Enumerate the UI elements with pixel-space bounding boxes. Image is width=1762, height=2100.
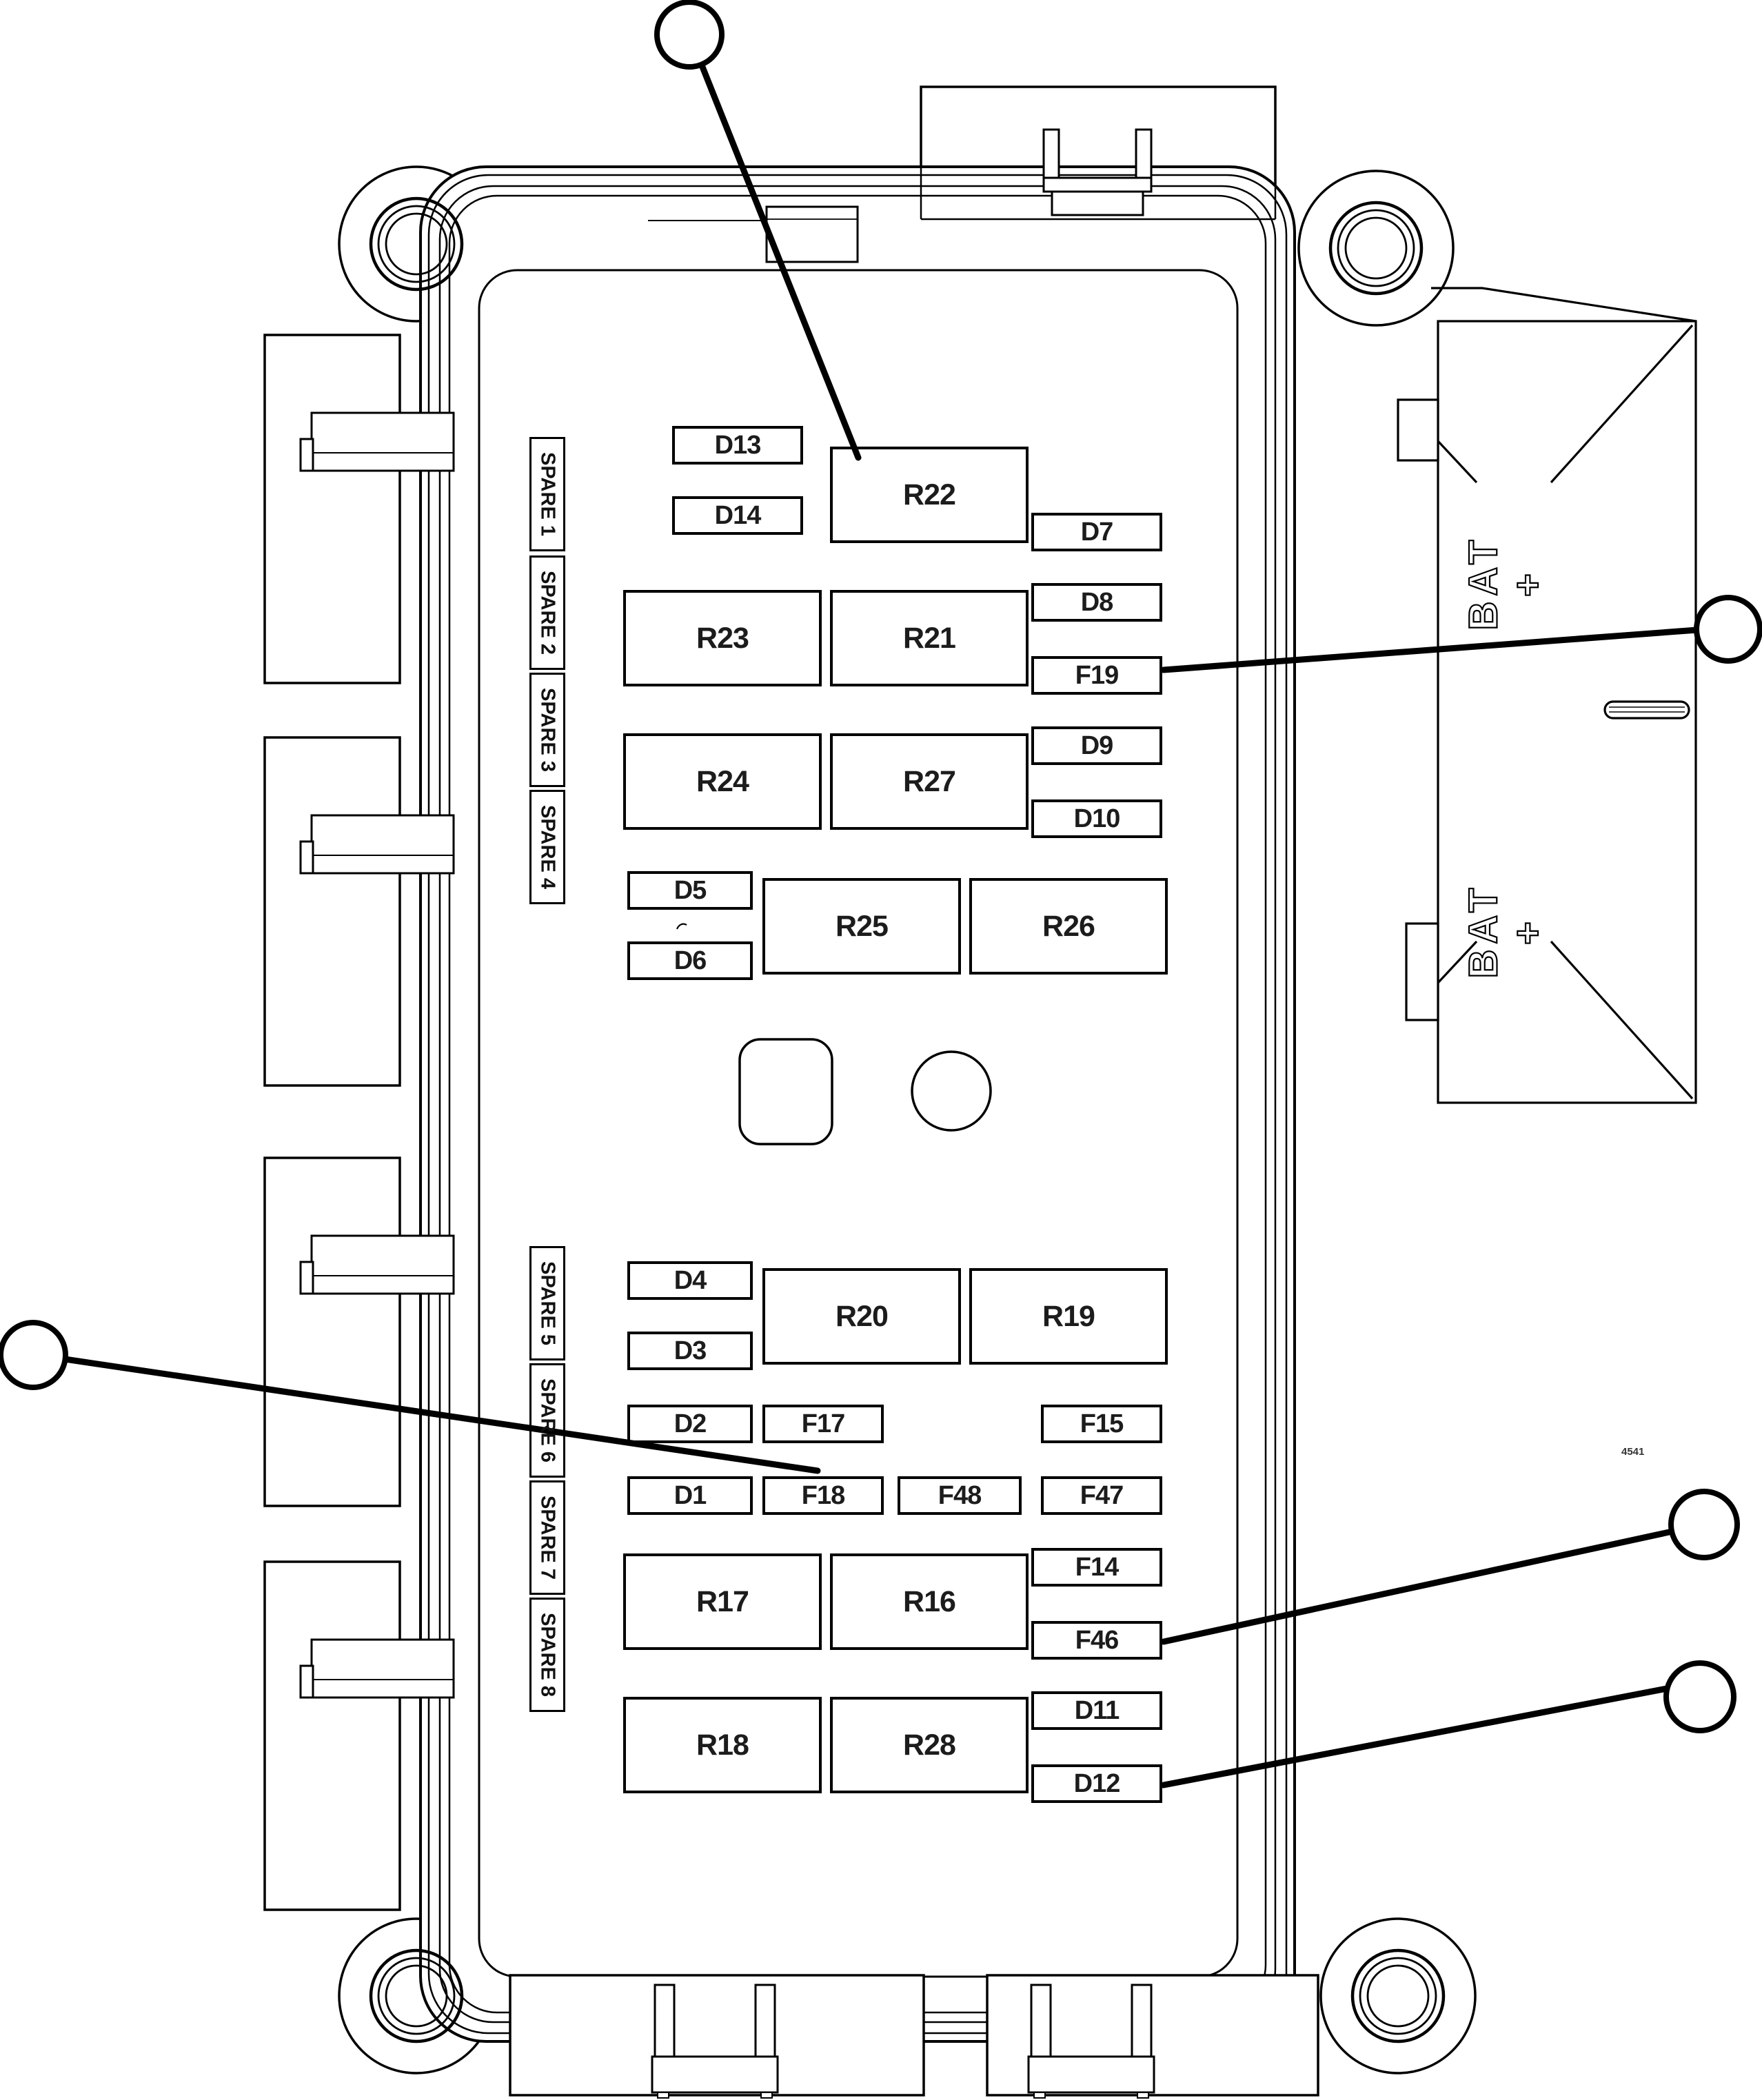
slot-r18-label: R18 — [696, 1729, 749, 1762]
battery-cover-panel — [1398, 288, 1696, 1103]
slot-r21-label: R21 — [903, 622, 955, 655]
slot-d5: D5 — [627, 871, 753, 910]
spare-slot-2: SPARE 2 — [529, 555, 565, 670]
slot-d10-label: D10 — [1074, 804, 1120, 834]
slot-r17: R17 — [623, 1553, 822, 1650]
slot-d9-label: D9 — [1081, 731, 1113, 761]
slot-f47: F47 — [1041, 1476, 1162, 1515]
slot-r17-label: R17 — [696, 1585, 749, 1619]
slot-d4-label: D4 — [674, 1266, 707, 1296]
slot-f14: F14 — [1031, 1548, 1162, 1587]
callout-circle-r22 — [657, 2, 722, 67]
bottom-connectors — [510, 1975, 1318, 2098]
bat-plus-upper: + — [1506, 568, 1550, 597]
slot-r19-label: R19 — [1042, 1300, 1095, 1334]
slot-r27: R27 — [830, 733, 1029, 830]
slot-d8: D8 — [1031, 583, 1162, 622]
bat-label-upper: BAT — [1461, 535, 1506, 631]
slot-f17: F17 — [762, 1405, 884, 1443]
slot-d10: D10 — [1031, 799, 1162, 838]
callout-circle-f46 — [1671, 1491, 1737, 1558]
slot-d11: D11 — [1031, 1691, 1162, 1730]
slot-d13-label: D13 — [715, 431, 761, 460]
slot-r23: R23 — [623, 590, 822, 686]
slot-r18: R18 — [623, 1697, 822, 1793]
callout-circle-d12 — [1666, 1663, 1734, 1731]
slot-d7: D7 — [1031, 513, 1162, 551]
spare-slot-8-label: SPARE 8 — [536, 1613, 559, 1697]
slot-r26-label: R26 — [1042, 910, 1095, 944]
slot-d2: D2 — [627, 1405, 753, 1443]
slot-d14-label: D14 — [715, 501, 761, 531]
slot-f15: F15 — [1041, 1405, 1162, 1443]
bat-plus-lower: + — [1506, 916, 1550, 945]
spare-slot-6: SPARE 6 — [529, 1363, 565, 1478]
spare-slot-7: SPARE 7 — [529, 1480, 565, 1595]
slot-f17-label: F17 — [802, 1409, 844, 1439]
spare-slot-4-label: SPARE 4 — [536, 805, 559, 889]
slot-f14-label: F14 — [1075, 1553, 1118, 1582]
slot-d2-label: D2 — [674, 1409, 707, 1439]
slot-d3: D3 — [627, 1332, 753, 1370]
spare-slot-7-label: SPARE 7 — [536, 1496, 559, 1580]
slot-r25-label: R25 — [836, 910, 888, 944]
slot-f46: F46 — [1031, 1621, 1162, 1660]
slot-r26: R26 — [969, 878, 1168, 975]
slot-r20-label: R20 — [836, 1300, 888, 1334]
slot-d3-label: D3 — [674, 1336, 707, 1366]
slot-r19: R19 — [969, 1268, 1168, 1365]
slot-r24-label: R24 — [696, 765, 749, 799]
slot-r21: R21 — [830, 590, 1029, 686]
slot-r23-label: R23 — [696, 622, 749, 655]
slot-d6: D6 — [627, 941, 753, 980]
slot-r24: R24 — [623, 733, 822, 830]
slot-d13: D13 — [672, 426, 803, 465]
spare-slot-5: SPARE 5 — [529, 1246, 565, 1360]
slot-d1-label: D1 — [674, 1481, 707, 1511]
spare-slot-3: SPARE 3 — [529, 673, 565, 787]
slot-r16: R16 — [830, 1553, 1029, 1650]
spare-slot-5-label: SPARE 5 — [536, 1261, 559, 1345]
slot-d14: D14 — [672, 496, 803, 535]
callout-circle-f18 — [1, 1323, 65, 1387]
slot-d8-label: D8 — [1081, 588, 1113, 618]
slot-f48: F48 — [898, 1476, 1022, 1515]
slot-r20: R20 — [762, 1268, 961, 1365]
figure-part-number: 4541 — [1621, 1446, 1644, 1458]
slot-f46-label: F46 — [1075, 1626, 1118, 1655]
slot-f19-label: F19 — [1075, 661, 1118, 691]
slot-f18-label: F18 — [802, 1481, 844, 1511]
slot-d5-label: D5 — [674, 876, 707, 906]
slot-r22-label: R22 — [903, 478, 955, 512]
slot-r22: R22 — [830, 447, 1029, 543]
slot-f48-label: F48 — [938, 1481, 981, 1511]
spare-slot-1-label: SPARE 1 — [536, 452, 559, 536]
spare-slot-4: SPARE 4 — [529, 790, 565, 904]
spare-slot-2-label: SPARE 2 — [536, 571, 559, 655]
slot-d12: D12 — [1031, 1764, 1162, 1803]
slot-d4: D4 — [627, 1261, 753, 1300]
slot-r25: R25 — [762, 878, 961, 975]
slot-f18: F18 — [762, 1476, 884, 1515]
slot-d11-label: D11 — [1075, 1696, 1120, 1726]
spare-slot-1: SPARE 1 — [529, 437, 565, 551]
spare-slot-8: SPARE 8 — [529, 1598, 565, 1712]
slot-d1: D1 — [627, 1476, 753, 1515]
slot-r27-label: R27 — [903, 765, 955, 799]
spare-slot-6-label: SPARE 6 — [536, 1378, 559, 1462]
slot-f47-label: F47 — [1080, 1481, 1123, 1511]
slot-d12-label: D12 — [1074, 1769, 1120, 1799]
slot-d7-label: D7 — [1081, 518, 1113, 547]
spare-slot-3-label: SPARE 3 — [536, 688, 559, 772]
callout-circle-f19 — [1697, 598, 1760, 661]
slot-r16-label: R16 — [903, 1585, 955, 1619]
slot-r28: R28 — [830, 1697, 1029, 1793]
slot-d6-label: D6 — [674, 946, 707, 976]
bat-label-lower: BAT — [1461, 883, 1506, 979]
slot-f15-label: F15 — [1080, 1409, 1123, 1439]
slot-d9: D9 — [1031, 726, 1162, 765]
fuse-block-diagram: BAT + BAT + SPARE 1 SPARE 2 SPARE 3 SPAR… — [0, 0, 1762, 2100]
slot-r28-label: R28 — [903, 1729, 955, 1762]
slot-f19: F19 — [1031, 656, 1162, 695]
